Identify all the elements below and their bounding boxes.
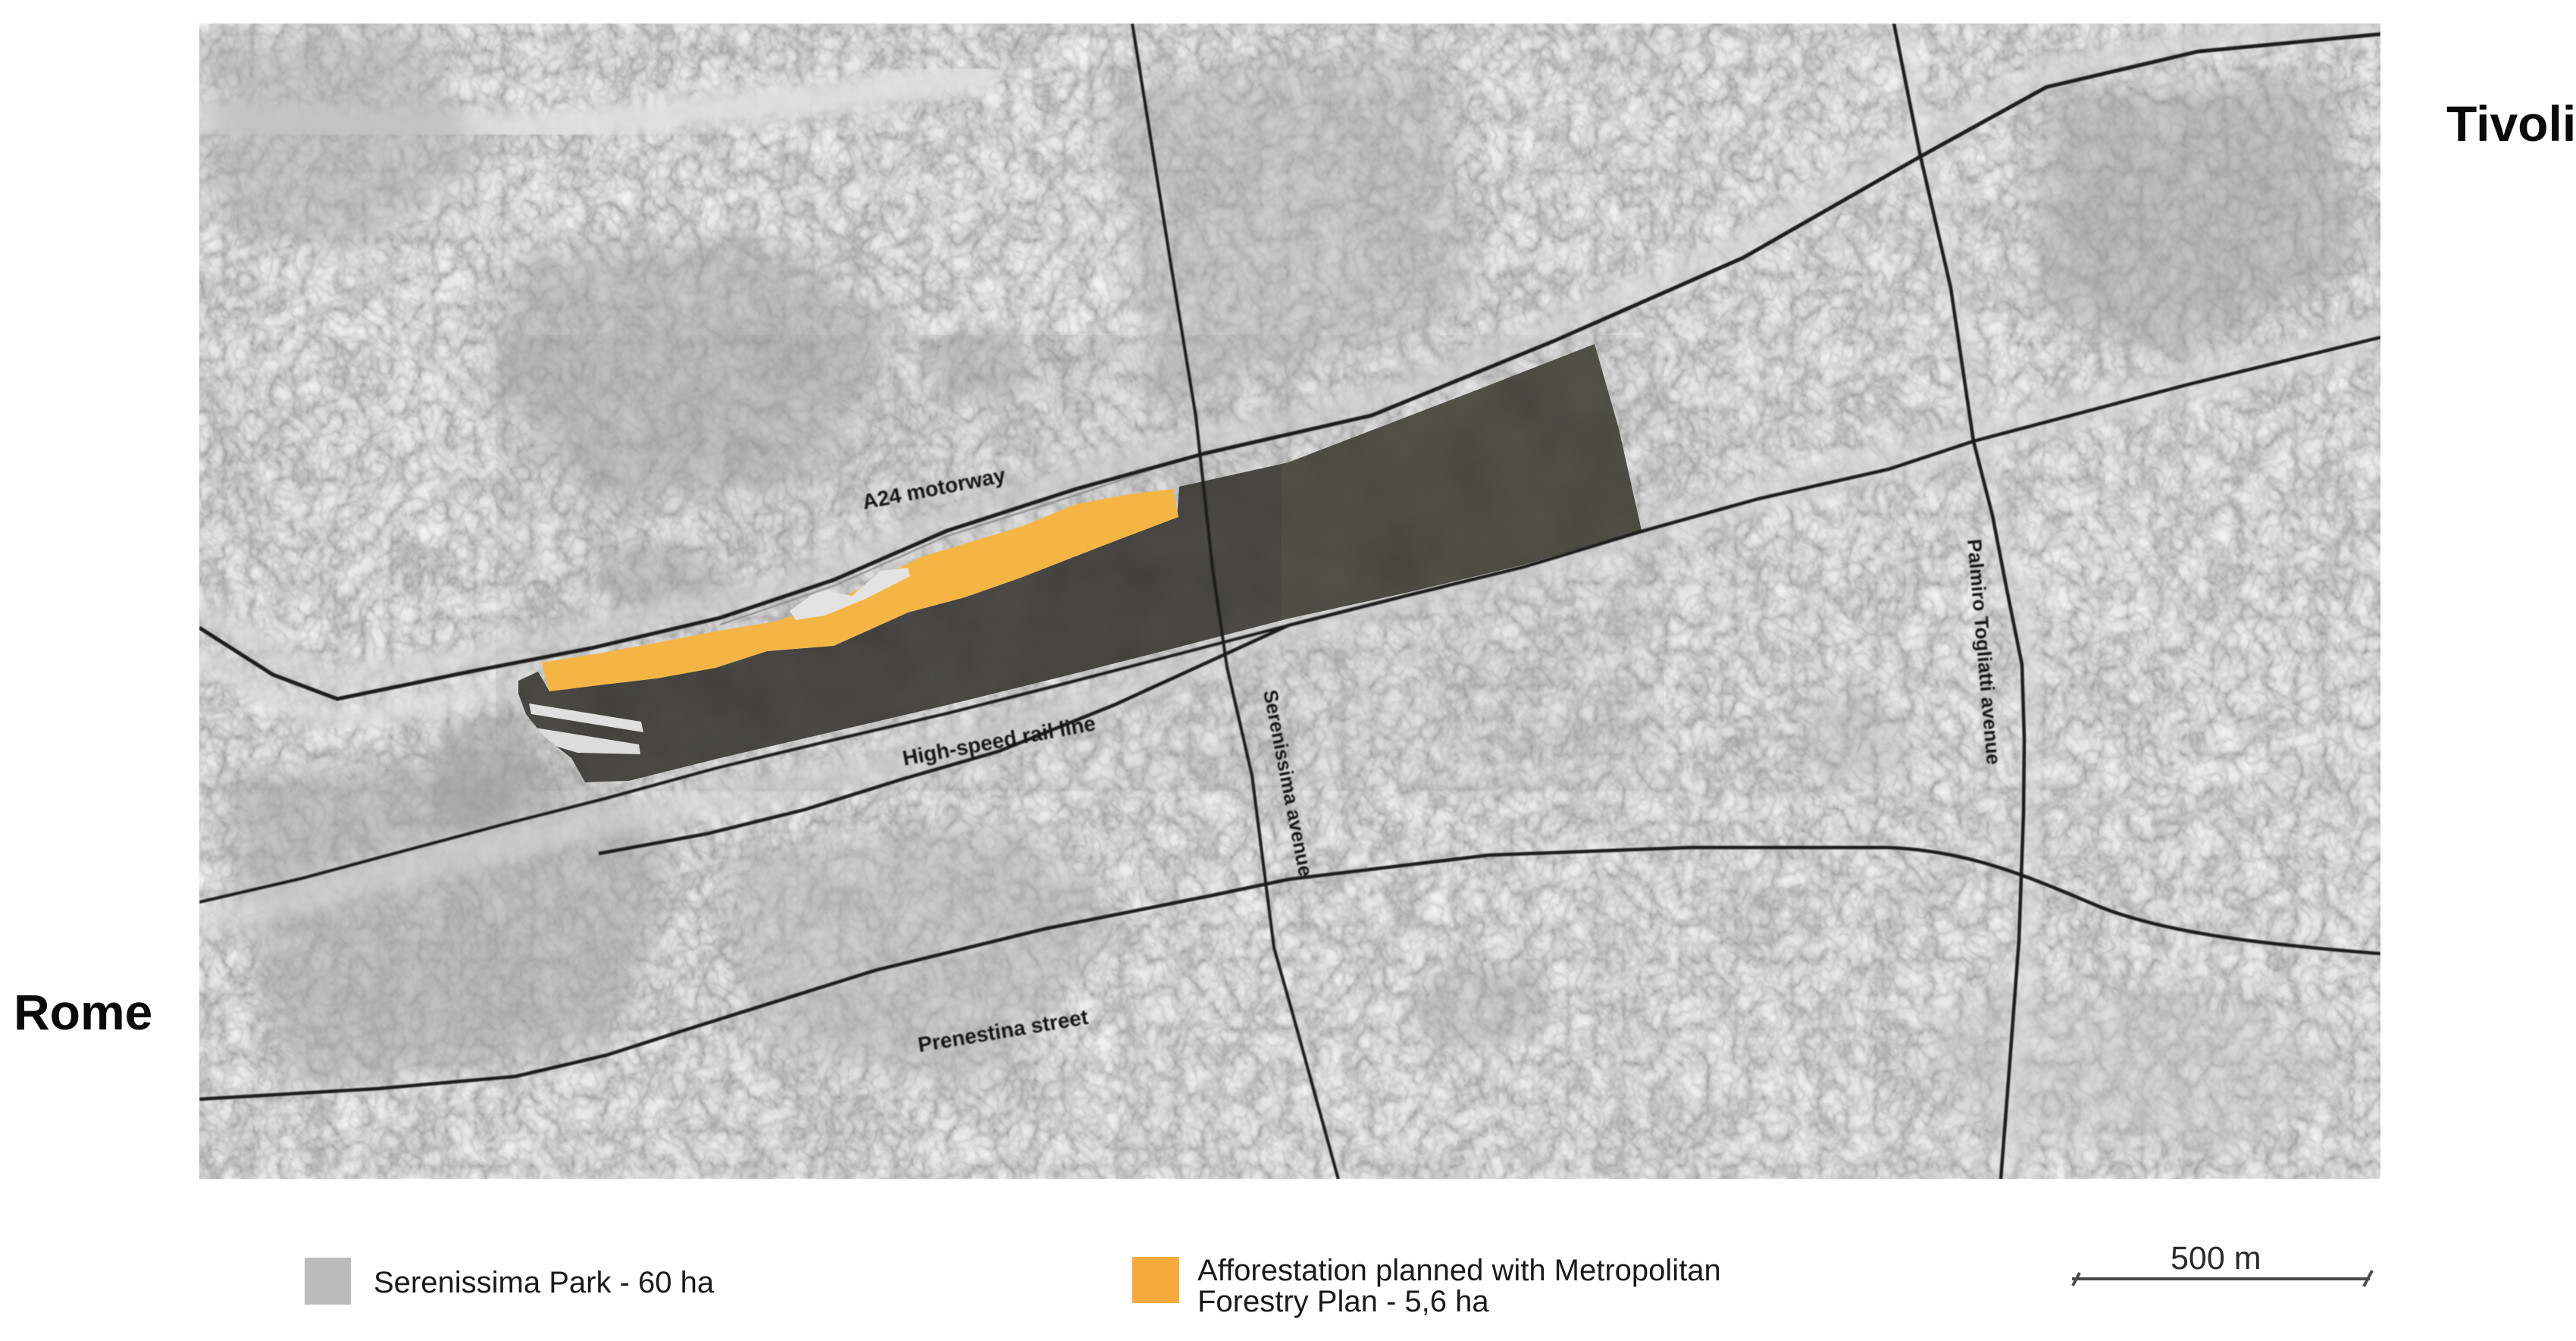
svg-text:Afforestation planned with Met: Afforestation planned with Metropolitan [1197, 1254, 1721, 1287]
svg-text:500 m: 500 m [2171, 1240, 2261, 1277]
svg-text:Tivoli: Tivoli [2446, 96, 2576, 152]
svg-text:Serenissima Park - 60 ha: Serenissima Park - 60 ha [374, 1266, 715, 1299]
svg-text:Forestry Plan - 5,6 ha: Forestry Plan - 5,6 ha [1197, 1285, 1489, 1318]
svg-text:Rome: Rome [14, 984, 152, 1040]
